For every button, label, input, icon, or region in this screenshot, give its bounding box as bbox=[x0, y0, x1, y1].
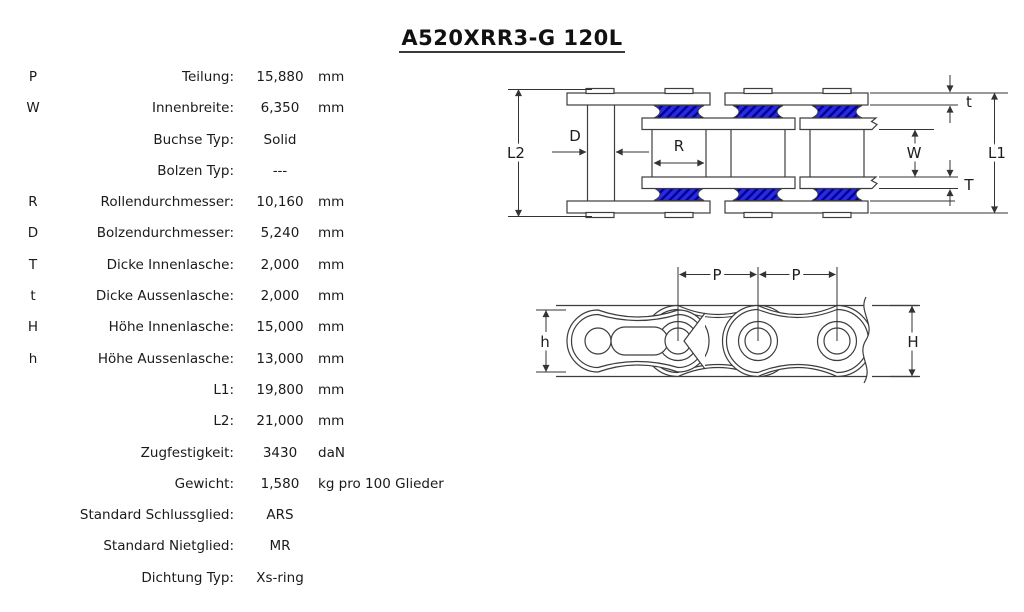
dim-label-P: P bbox=[712, 266, 721, 284]
inner-plate bbox=[642, 177, 795, 189]
dim-label-L1: L1 bbox=[988, 144, 1006, 162]
pin-end-tabs bbox=[586, 89, 851, 218]
dim-label-h: h bbox=[540, 333, 550, 351]
dim-h: h bbox=[536, 310, 566, 372]
dim-label-t: t bbox=[966, 93, 972, 111]
x-ring-seal bbox=[812, 106, 862, 119]
dim-label-R: R bbox=[674, 137, 684, 155]
dim-D: D bbox=[552, 127, 649, 152]
outer-plate bbox=[567, 93, 710, 105]
x-ring-seal bbox=[654, 106, 704, 119]
dim-label-D: D bbox=[569, 127, 581, 145]
dim-label-T: T bbox=[963, 176, 974, 194]
inner-plate bbox=[642, 118, 795, 130]
outer-plate bbox=[725, 93, 868, 105]
dim-label-P: P bbox=[791, 266, 800, 284]
technical-drawings: L2 D R t bbox=[0, 0, 1024, 612]
dim-label-H: H bbox=[907, 333, 918, 351]
x-ring-seal bbox=[733, 106, 783, 119]
outer-plate bbox=[567, 201, 710, 213]
dim-R: R bbox=[654, 137, 704, 163]
clip-slot bbox=[611, 327, 668, 355]
dim-t: t bbox=[870, 75, 972, 123]
x-ring-seal bbox=[812, 188, 862, 201]
x-ring-seal bbox=[733, 188, 783, 201]
dim-H: H bbox=[907, 306, 918, 376]
dim-T: T bbox=[879, 160, 974, 206]
dim-label-W: W bbox=[907, 144, 922, 162]
pin-hole bbox=[585, 328, 611, 354]
dim-label-L2: L2 bbox=[507, 144, 525, 162]
dim-W: W bbox=[879, 130, 958, 178]
inner-plate-broken bbox=[800, 118, 877, 130]
side-view-drawing: P P h H bbox=[536, 266, 920, 383]
outer-plate bbox=[725, 201, 868, 213]
top-view-drawing: L2 D R t bbox=[507, 75, 1008, 218]
x-ring-seal bbox=[654, 188, 704, 201]
dim-L2: L2 bbox=[507, 90, 592, 217]
dim-L1: L1 bbox=[870, 93, 1008, 213]
chain-datasheet: A520XRR3-G 120L PTeilung:15,880mm WInnen… bbox=[0, 0, 1024, 612]
inner-plate-broken bbox=[800, 177, 877, 189]
